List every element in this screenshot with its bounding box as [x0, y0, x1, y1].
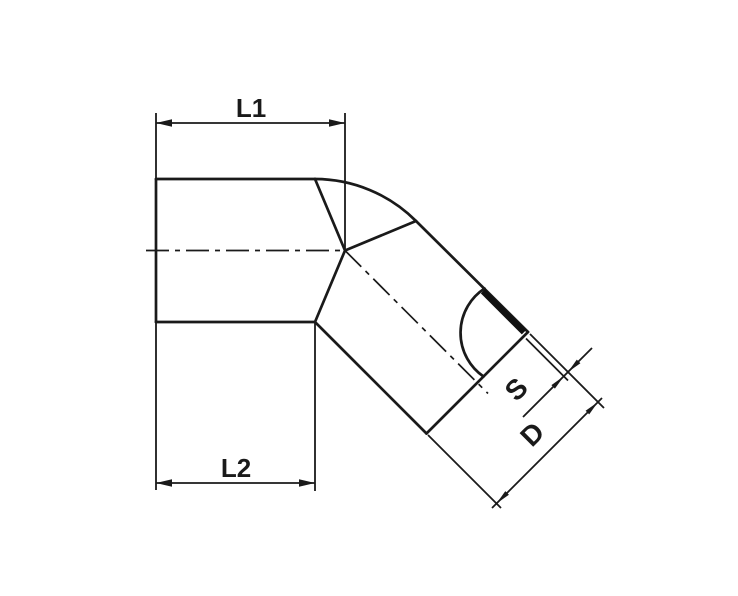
section-break-arc — [461, 289, 485, 377]
miter-line-outer — [345, 221, 416, 251]
dimension-l2: L2 — [156, 322, 315, 491]
s-label: S — [499, 372, 534, 407]
d-arrowhead-outer — [586, 402, 598, 414]
d-label: D — [514, 416, 550, 452]
d-arrowhead-inner — [497, 491, 509, 503]
dimension-l1: L1 — [156, 93, 345, 490]
l2-arrowhead-left — [156, 479, 172, 486]
l2-arrowhead-right — [299, 479, 315, 486]
miter-line-inner — [315, 251, 345, 323]
s-arrowhead-inner — [551, 376, 563, 388]
drawing-canvas: L1 L2 S D — [0, 0, 738, 596]
bore-extension-line — [526, 339, 568, 381]
l1-arrowhead-left — [156, 119, 172, 126]
l2-label: L2 — [221, 453, 251, 483]
miter-line-top — [315, 179, 345, 251]
elbow-fitting-diagram: L1 L2 S D — [0, 0, 738, 596]
d-extension-line-inner — [428, 435, 501, 508]
outer-wall-extension-line — [530, 334, 604, 408]
l1-label: L1 — [236, 93, 266, 123]
l1-arrowhead-right — [329, 119, 345, 126]
d-dimension-line — [492, 398, 602, 508]
dimension-d: D — [428, 398, 602, 508]
s-arrowhead-outer — [568, 360, 580, 372]
branch-inner-edge — [315, 322, 427, 434]
wall-section-fill — [483, 291, 524, 332]
fitting-outline — [156, 179, 528, 434]
